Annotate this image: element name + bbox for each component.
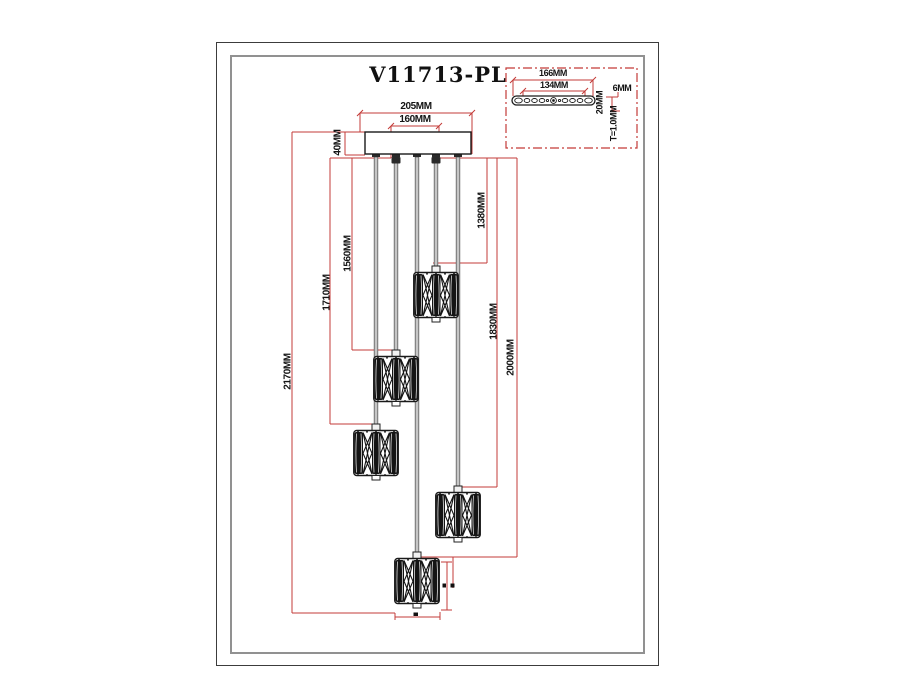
- dim-canopy-height-label: 40MM: [333, 113, 344, 173]
- dim-drop-1710-lines: [330, 158, 378, 424]
- page-title: V11713-PL: [368, 62, 508, 87]
- dim-drop-1710-label: 1710MM: [322, 263, 333, 323]
- dim-plate-depth-label: 20MM: [595, 73, 606, 133]
- rod-knob: [392, 157, 401, 164]
- dim-total-drop-label: 2170MM: [283, 342, 294, 402]
- rod-4: [434, 157, 438, 268]
- dimension-label-blob: [451, 584, 455, 588]
- dim-canopy-outer-label: 205MM: [386, 101, 446, 112]
- drawing-canvas: [0, 0, 900, 675]
- rod-2: [394, 157, 398, 352]
- rod-5: [456, 157, 460, 488]
- dim-drop-1380-label: 1380MM: [477, 181, 488, 241]
- dim-plate-thickness-label: T=1.0MM: [609, 94, 620, 154]
- dimension-label-blob: [443, 584, 447, 588]
- dim-drop-1830-label: 1830MM: [489, 292, 500, 352]
- pendant-lamp: [436, 486, 481, 542]
- dim-canopy-height-lines: [345, 132, 365, 155]
- rod-3: [415, 157, 419, 554]
- rod-knob: [432, 157, 441, 164]
- dimension-label-blob: [414, 613, 419, 617]
- pendant-lamp: [414, 266, 459, 322]
- dim-plate-inner-label: 134MM: [524, 80, 584, 91]
- ceiling-canopy: [365, 132, 471, 154]
- dim-canopy-inner-label: 160MM: [385, 114, 445, 125]
- pendant-lamp: [395, 552, 440, 608]
- technical-drawing-page: V11713-PL 205MM 160MM 40MM 2170MM 1710MM…: [0, 0, 900, 675]
- dim-drop-2000-label: 2000MM: [506, 328, 517, 388]
- dim-plate-outer-label: 166MM: [523, 68, 583, 79]
- dim-drop-1560-label: 1560MM: [343, 224, 354, 284]
- pendant-lamp: [374, 350, 419, 406]
- pendant-lamp: [354, 424, 399, 480]
- mount-plate-detail: [512, 96, 595, 105]
